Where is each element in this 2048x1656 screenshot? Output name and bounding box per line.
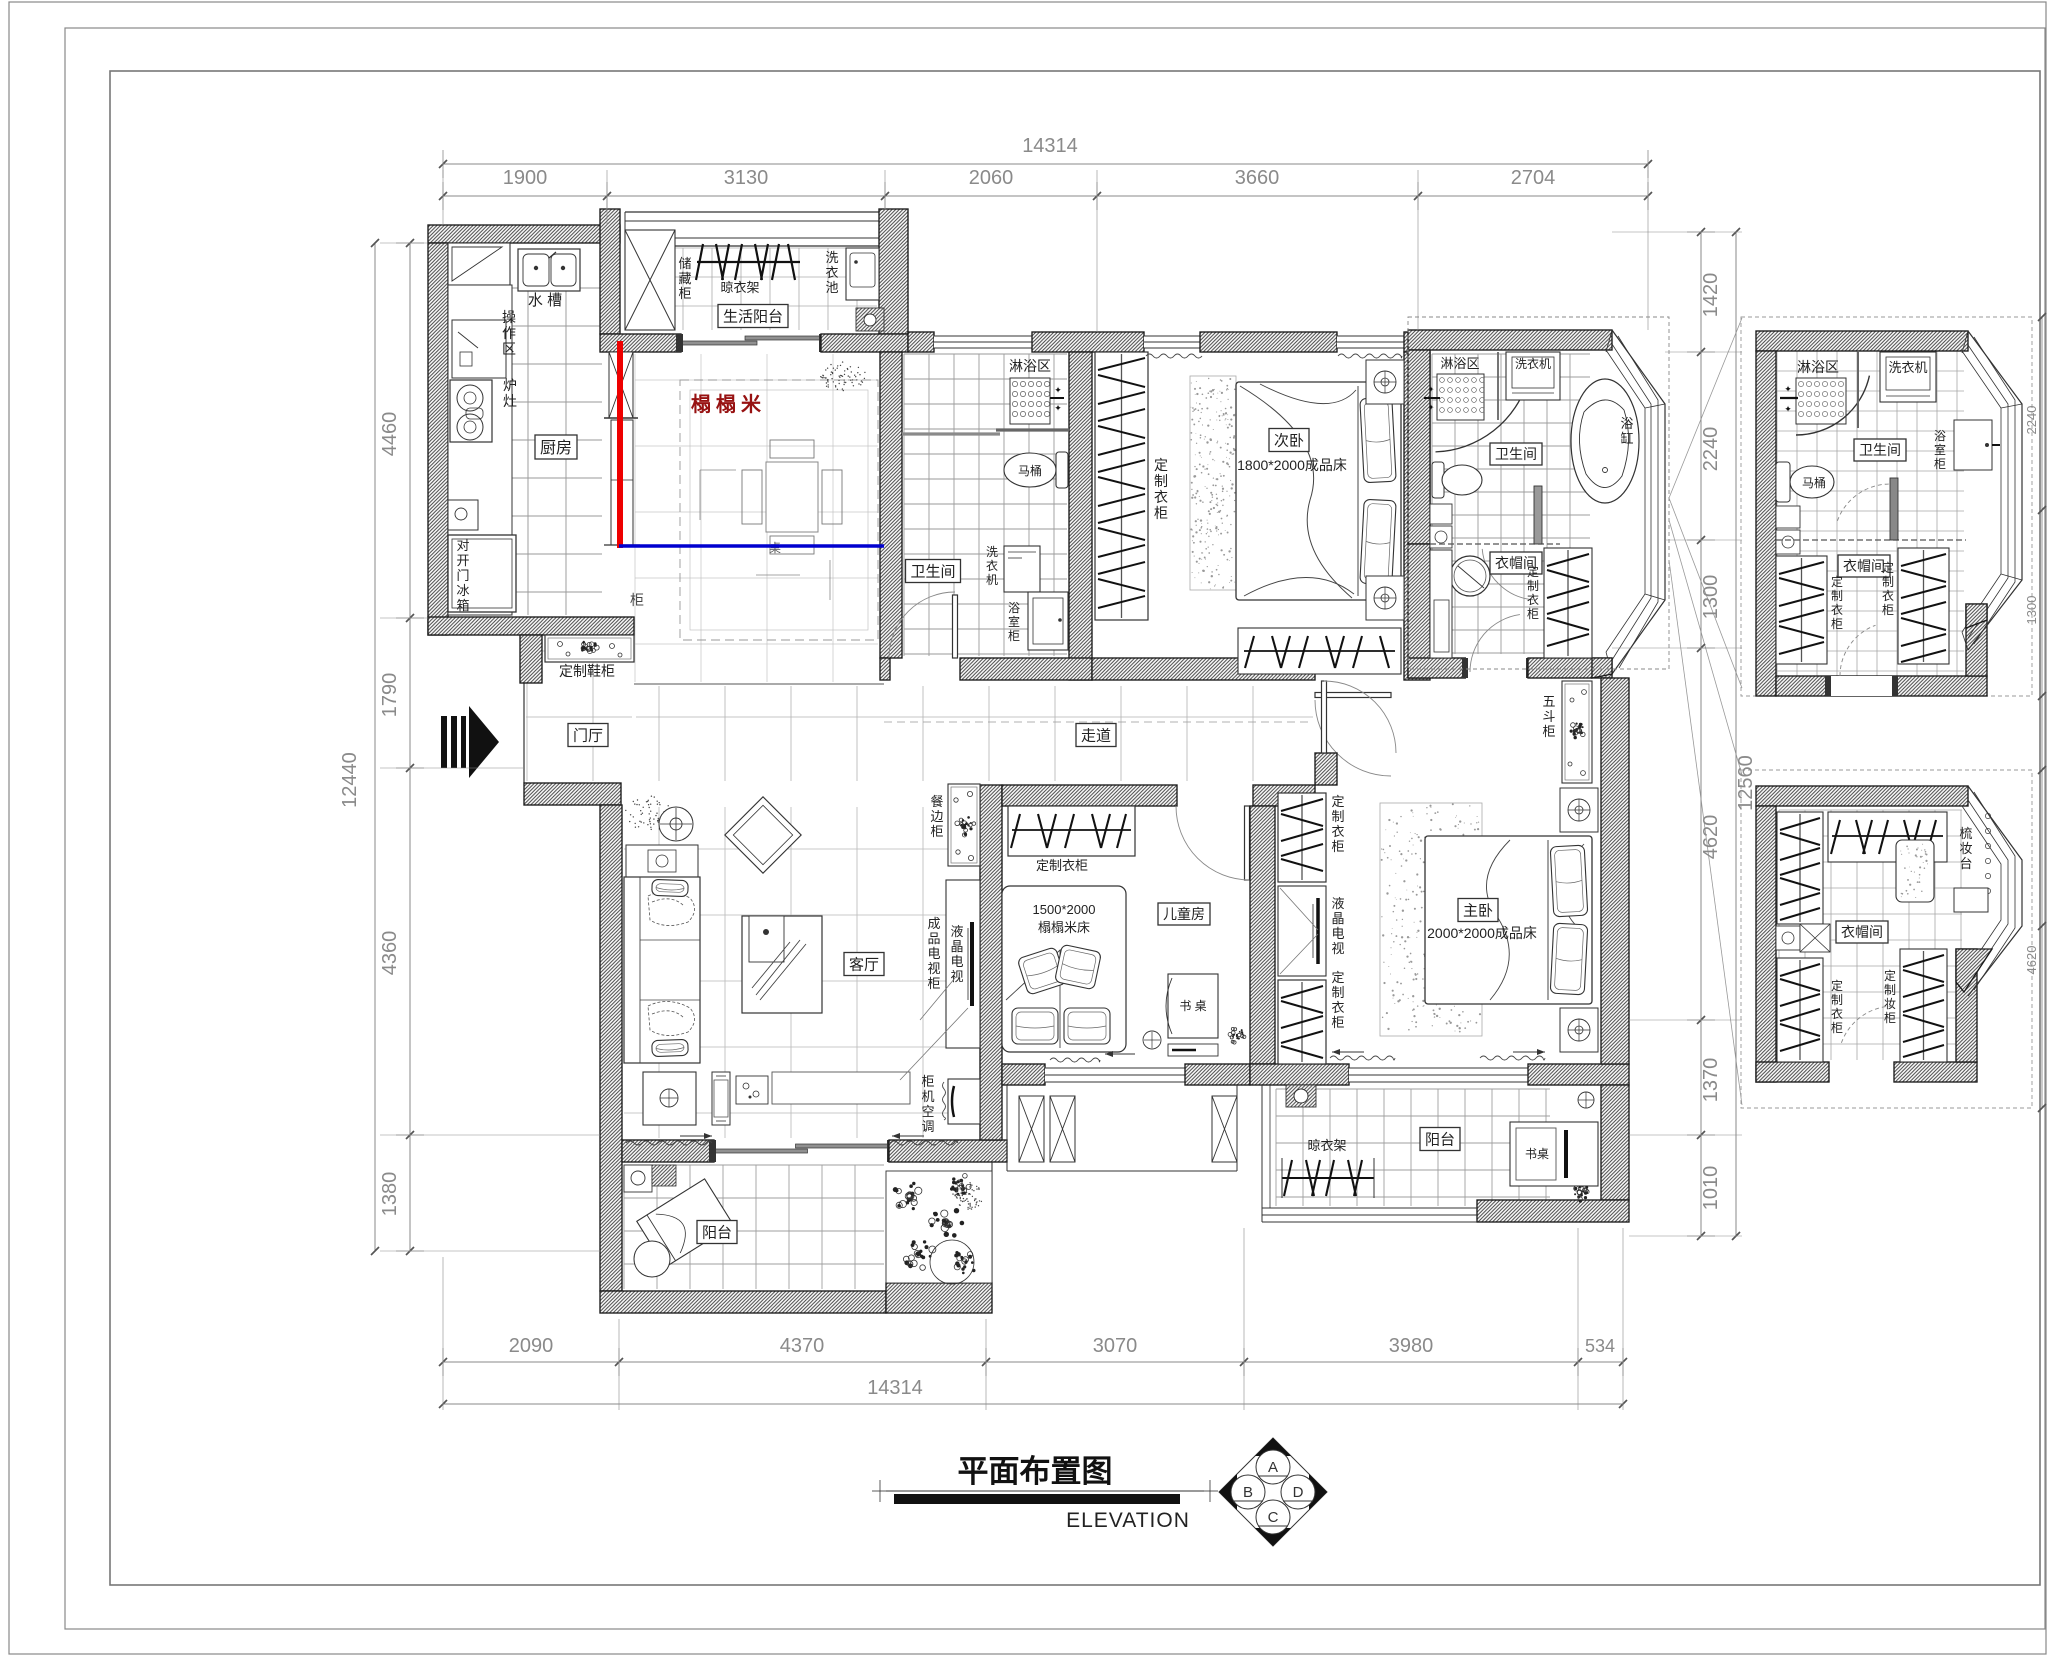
svg-text:书 桌: 书 桌 bbox=[1179, 999, 1206, 1013]
svg-text:淋浴区: 淋浴区 bbox=[1797, 359, 1839, 375]
svg-text:柜: 柜 bbox=[630, 592, 644, 608]
svg-text:走道: 走道 bbox=[1081, 727, 1111, 744]
svg-text:✦: ✦ bbox=[1428, 385, 1435, 394]
svg-text:ELEVATION: ELEVATION bbox=[1066, 1509, 1190, 1532]
svg-text:定制妆柜: 定制妆柜 bbox=[1884, 968, 1896, 1025]
svg-text:榻榻米: 榻榻米 bbox=[691, 392, 766, 416]
svg-text:水 槽: 水 槽 bbox=[528, 292, 562, 309]
svg-text:✦: ✦ bbox=[1054, 403, 1062, 413]
svg-text:马桶: 马桶 bbox=[1802, 475, 1826, 490]
svg-text:门厅: 门厅 bbox=[573, 727, 603, 744]
svg-text:14314: 14314 bbox=[867, 1377, 923, 1399]
svg-text:1420: 1420 bbox=[1700, 273, 1722, 318]
svg-text:12560: 12560 bbox=[1735, 755, 1757, 811]
svg-text:2240: 2240 bbox=[2024, 406, 2039, 435]
svg-text:客厅: 客厅 bbox=[849, 956, 879, 973]
svg-text:2704: 2704 bbox=[1511, 167, 1556, 189]
svg-text:洗衣池: 洗衣池 bbox=[825, 250, 838, 295]
svg-text:定制衣柜: 定制衣柜 bbox=[1831, 978, 1843, 1035]
svg-text:洗衣机: 洗衣机 bbox=[986, 545, 998, 587]
svg-text:阳台: 阳台 bbox=[1425, 1131, 1455, 1148]
svg-text:生活阳台: 生活阳台 bbox=[723, 308, 783, 325]
svg-text:次卧: 次卧 bbox=[1274, 432, 1304, 449]
svg-text:定制鞋柜: 定制鞋柜 bbox=[559, 663, 615, 679]
svg-text:4360: 4360 bbox=[379, 931, 401, 976]
svg-text:梳妆台: 梳妆台 bbox=[1959, 826, 1972, 871]
svg-text:晾衣架: 晾衣架 bbox=[720, 280, 759, 295]
svg-text:1380: 1380 bbox=[379, 1172, 401, 1217]
svg-text:阳台: 阳台 bbox=[702, 1224, 732, 1241]
svg-text:3980: 3980 bbox=[1389, 1335, 1434, 1357]
svg-text:桌: 桌 bbox=[769, 541, 781, 555]
svg-text:14314: 14314 bbox=[1022, 135, 1078, 157]
svg-text:3070: 3070 bbox=[1093, 1335, 1138, 1357]
svg-text:储藏柜: 储藏柜 bbox=[678, 256, 691, 301]
svg-text:定制衣柜: 定制衣柜 bbox=[1882, 560, 1894, 617]
svg-text:液晶电视: 液晶电视 bbox=[950, 924, 963, 984]
svg-text:1800*2000成品床: 1800*2000成品床 bbox=[1237, 457, 1347, 473]
svg-text:餐边柜: 餐边柜 bbox=[930, 794, 943, 839]
svg-text:浴室柜: 浴室柜 bbox=[1934, 429, 1946, 471]
svg-text:定制衣柜: 定制衣柜 bbox=[1527, 564, 1539, 621]
svg-text:柜机空调: 柜机空调 bbox=[921, 1074, 934, 1134]
svg-text:534: 534 bbox=[1585, 1336, 1615, 1356]
svg-text:1500*2000: 1500*2000 bbox=[1033, 902, 1096, 917]
svg-text:1370: 1370 bbox=[1700, 1058, 1722, 1103]
svg-text:定制衣柜: 定制衣柜 bbox=[1831, 574, 1843, 631]
svg-text:洗衣机: 洗衣机 bbox=[1515, 356, 1551, 371]
svg-text:12440: 12440 bbox=[339, 752, 361, 808]
svg-text:2060: 2060 bbox=[969, 167, 1014, 189]
svg-text:✦: ✦ bbox=[1054, 385, 1062, 395]
svg-text:C: C bbox=[1268, 1509, 1279, 1526]
svg-text:厨房: 厨房 bbox=[540, 439, 572, 457]
svg-text:2090: 2090 bbox=[509, 1335, 554, 1357]
svg-text:炉灶: 炉灶 bbox=[503, 377, 517, 409]
svg-text:衣帽间: 衣帽间 bbox=[1841, 924, 1883, 940]
svg-text:榻榻米床: 榻榻米床 bbox=[1038, 920, 1090, 935]
svg-text:儿童房: 儿童房 bbox=[1163, 906, 1205, 922]
svg-text:✦: ✦ bbox=[1784, 404, 1792, 414]
svg-text:1900: 1900 bbox=[503, 167, 548, 189]
svg-text:定制衣柜: 定制衣柜 bbox=[1331, 970, 1344, 1030]
svg-text:成品电视柜: 成品电视柜 bbox=[927, 916, 940, 991]
svg-text:淋浴区: 淋浴区 bbox=[1440, 356, 1479, 371]
svg-text:4460: 4460 bbox=[379, 412, 401, 457]
svg-text:D: D bbox=[1293, 1484, 1304, 1501]
svg-text:4620: 4620 bbox=[2024, 946, 2039, 975]
svg-text:1300: 1300 bbox=[1700, 575, 1722, 620]
svg-text:定制衣柜: 定制衣柜 bbox=[1154, 457, 1168, 521]
svg-text:五斗柜: 五斗柜 bbox=[1542, 694, 1555, 739]
svg-text:✦: ✦ bbox=[1784, 384, 1792, 394]
svg-text:主卧: 主卧 bbox=[1463, 902, 1493, 919]
svg-text:晾衣架: 晾衣架 bbox=[1307, 1138, 1346, 1153]
svg-text:卫生间: 卫生间 bbox=[1859, 442, 1901, 458]
svg-text:浴室柜: 浴室柜 bbox=[1008, 601, 1020, 643]
svg-text:4620: 4620 bbox=[1700, 815, 1722, 860]
svg-text:操作区: 操作区 bbox=[502, 309, 516, 357]
svg-text:洗衣机: 洗衣机 bbox=[1888, 360, 1927, 375]
svg-text:3130: 3130 bbox=[724, 167, 769, 189]
svg-text:平面布置图: 平面布置图 bbox=[958, 1454, 1113, 1489]
svg-text:B: B bbox=[1243, 1484, 1253, 1501]
svg-text:3660: 3660 bbox=[1235, 167, 1280, 189]
svg-text:2000*2000成品床: 2000*2000成品床 bbox=[1427, 925, 1537, 941]
svg-text:卫生间: 卫生间 bbox=[1495, 446, 1537, 462]
svg-text:卫生间: 卫生间 bbox=[910, 563, 955, 580]
svg-text:✦: ✦ bbox=[1428, 403, 1435, 412]
svg-text:定制衣柜: 定制衣柜 bbox=[1331, 794, 1344, 854]
svg-text:淋浴区: 淋浴区 bbox=[1009, 358, 1051, 374]
svg-text:定制衣柜: 定制衣柜 bbox=[1036, 858, 1088, 873]
svg-text:书桌: 书桌 bbox=[1525, 1147, 1549, 1161]
svg-text:1790: 1790 bbox=[379, 673, 401, 718]
svg-text:1300: 1300 bbox=[2024, 596, 2039, 625]
svg-text:1010: 1010 bbox=[1700, 1166, 1722, 1211]
svg-text:4370: 4370 bbox=[780, 1335, 825, 1357]
svg-text:浴缸: 浴缸 bbox=[1620, 416, 1633, 446]
svg-text:液晶电视: 液晶电视 bbox=[1331, 896, 1344, 956]
svg-text:对开门冰箱: 对开门冰箱 bbox=[456, 538, 469, 613]
svg-text:马桶: 马桶 bbox=[1018, 463, 1042, 478]
svg-text:A: A bbox=[1268, 1459, 1278, 1476]
svg-text:2240: 2240 bbox=[1700, 427, 1722, 472]
svg-text:衣帽间: 衣帽间 bbox=[1843, 558, 1885, 574]
